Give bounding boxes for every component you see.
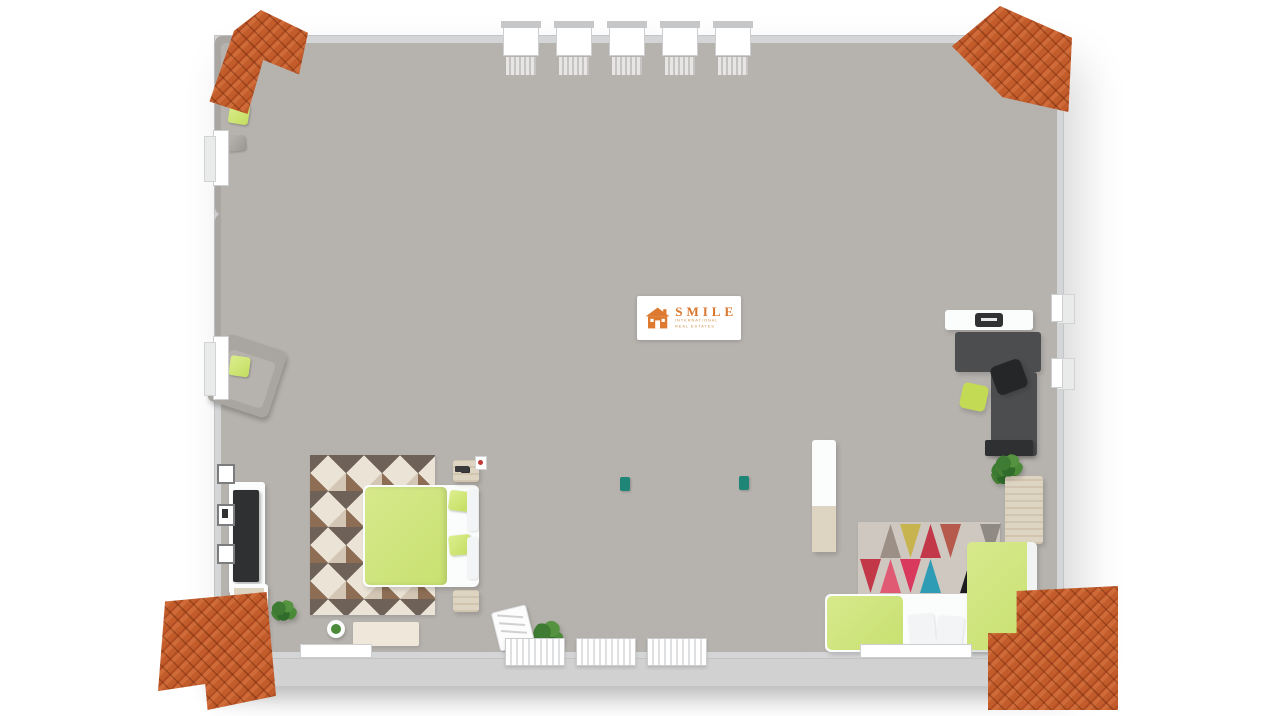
window-radiator	[505, 638, 565, 666]
picture-frame	[217, 544, 235, 564]
bottom-radiator-row	[505, 638, 715, 668]
bedroom2-window-sill	[860, 644, 972, 658]
rack-bar	[497, 614, 523, 618]
watermark-subtitle-1: INTERNATIONAL	[675, 319, 718, 323]
top-window	[503, 22, 539, 56]
white-pillow	[467, 489, 478, 531]
long-sofa	[215, 214, 269, 341]
green-chair	[959, 382, 990, 413]
stool	[327, 620, 345, 638]
curtain	[559, 57, 589, 75]
rug-triangle	[940, 524, 961, 558]
top-window	[556, 22, 592, 56]
rug-triangle	[880, 524, 901, 558]
curtain	[718, 57, 748, 75]
curtain	[506, 57, 536, 75]
bedroom2-cabinet	[812, 440, 836, 552]
rug-triangle	[860, 559, 881, 593]
watermark-text: SMILE INTERNATIONAL REAL ESTATES	[675, 305, 741, 331]
office-shelf	[945, 310, 1033, 330]
teal-side-table	[739, 476, 749, 490]
bed-bench-runner	[353, 622, 419, 646]
right-window	[1051, 294, 1063, 322]
printer-icon	[975, 313, 1003, 327]
duvet	[365, 487, 447, 585]
lime-pillow	[228, 355, 251, 378]
right-window	[1051, 358, 1063, 388]
bed-green-cushion	[827, 596, 903, 650]
window-lintel	[607, 21, 647, 28]
white-pillow	[467, 537, 478, 579]
gray-pillow	[226, 135, 245, 152]
cabinet-wood-shelf	[812, 506, 836, 552]
nightstand-bottom	[453, 590, 479, 612]
wall-tv	[233, 490, 259, 582]
window-lintel	[660, 21, 700, 28]
bedroom2-plant	[995, 454, 1023, 478]
printer-slot	[981, 318, 997, 321]
left-window-sill	[204, 136, 216, 182]
roof-corner-bottom-left	[158, 592, 276, 710]
stool-plant	[331, 624, 341, 634]
left-window-sill	[204, 342, 216, 396]
floor-plan	[215, 36, 1063, 658]
bedroom2-dresser	[1005, 476, 1043, 544]
teal-side-table	[620, 477, 630, 491]
remote	[455, 466, 469, 472]
picture-frame	[217, 464, 235, 484]
top-window	[662, 22, 698, 56]
top-window	[715, 22, 751, 56]
watermark-brand: SMILE	[675, 305, 741, 319]
rack-bar	[501, 630, 527, 634]
rug-triangle	[900, 524, 921, 558]
top-window	[609, 22, 645, 56]
master-plant	[271, 600, 297, 622]
watermark-logo-card: SMILE INTERNATIONAL REAL ESTATES	[637, 296, 741, 340]
master-window-sill	[300, 644, 372, 658]
curtain	[665, 57, 695, 75]
rug-triangle	[920, 559, 941, 593]
top-window-row	[503, 22, 773, 74]
window-lintel	[501, 21, 541, 28]
window-lintel	[713, 21, 753, 28]
curtain	[612, 57, 642, 75]
master-bed	[363, 485, 479, 587]
tv-board	[229, 482, 265, 594]
wall-device	[475, 456, 487, 470]
frame-art	[222, 509, 228, 518]
window-radiator	[576, 638, 636, 666]
house-logo-icon	[644, 304, 671, 332]
rug-triangle	[920, 524, 941, 558]
picture-frame	[217, 504, 235, 526]
watermark-subtitle-2: REAL ESTATES	[675, 325, 718, 329]
window-radiator	[647, 638, 707, 666]
rack-bar	[499, 622, 525, 626]
floor-plan-render: SMILE INTERNATIONAL REAL ESTATES	[0, 0, 1280, 716]
rug-triangle	[880, 559, 901, 593]
window-lintel	[554, 21, 594, 28]
rug-triangle	[900, 559, 921, 593]
red-indicator	[478, 460, 483, 465]
white-pillow	[907, 613, 936, 648]
